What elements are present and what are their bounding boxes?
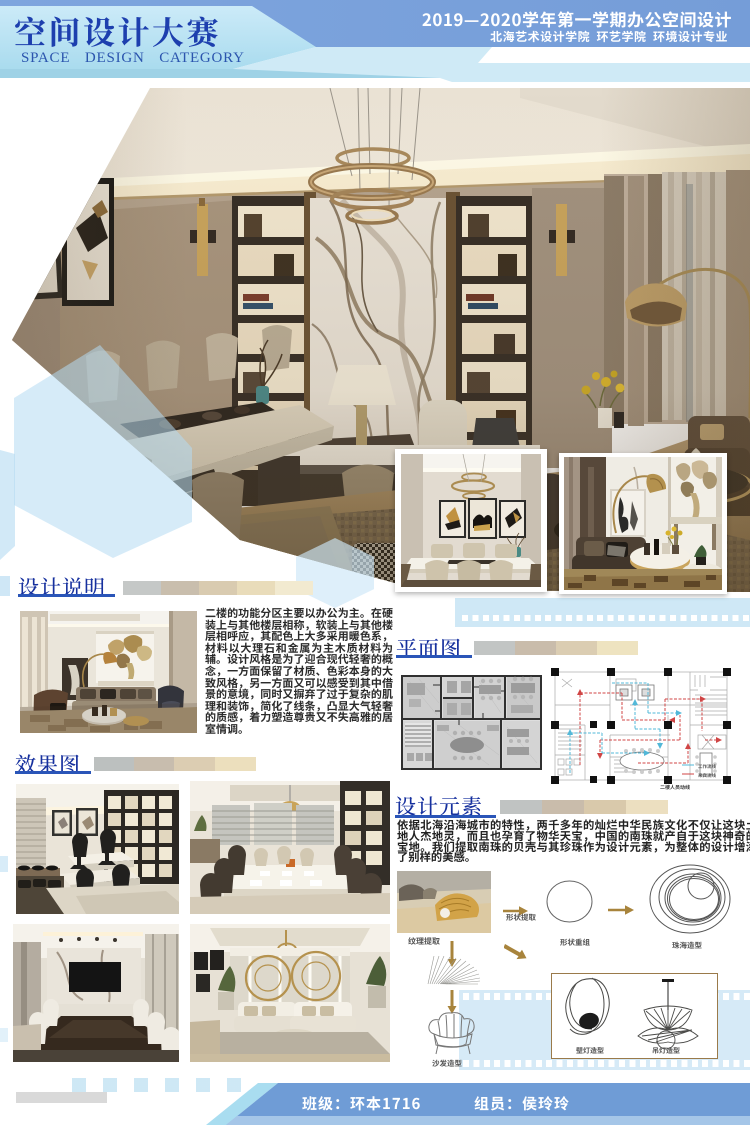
svg-text:吊灯造型: 吊灯造型	[652, 1046, 680, 1056]
svg-text:二楼人员动线: 二楼人员动线	[660, 784, 690, 791]
svg-text:壁灯造型: 壁灯造型	[576, 1046, 604, 1056]
svg-text:工作流线: 工作流线	[698, 764, 716, 770]
svg-text:来宾流线: 来宾流线	[698, 773, 716, 779]
